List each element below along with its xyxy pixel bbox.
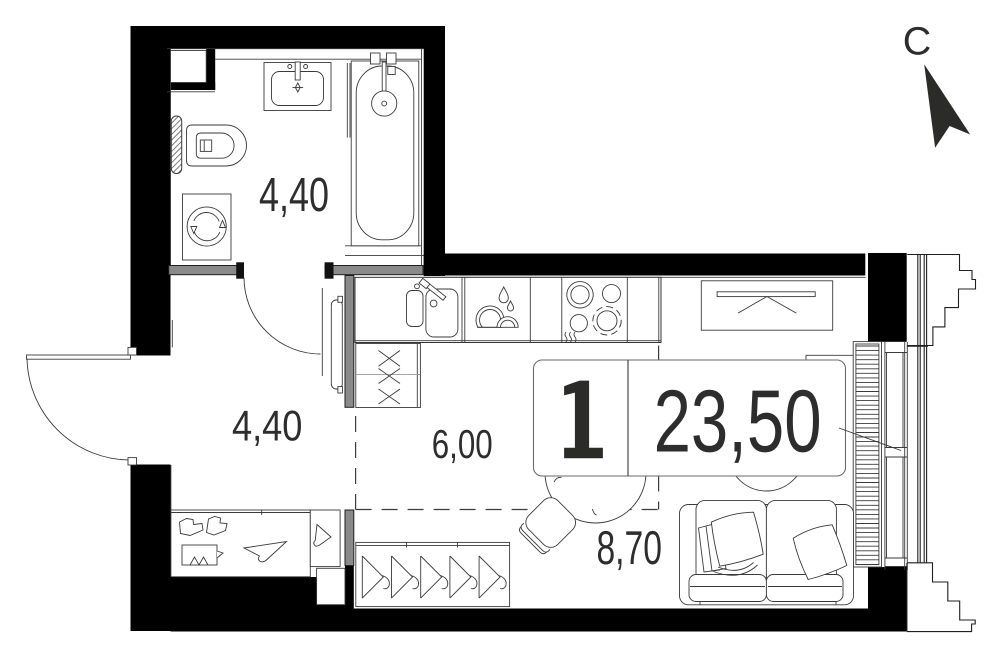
svg-text:С: С [903,20,932,64]
svg-text:8,70: 8,70 [596,522,662,575]
svg-text:4,40: 4,40 [232,403,303,451]
svg-text:4,40: 4,40 [259,169,329,222]
svg-text:6,00: 6,00 [432,421,493,467]
svg-text:23,50: 23,50 [654,372,822,471]
